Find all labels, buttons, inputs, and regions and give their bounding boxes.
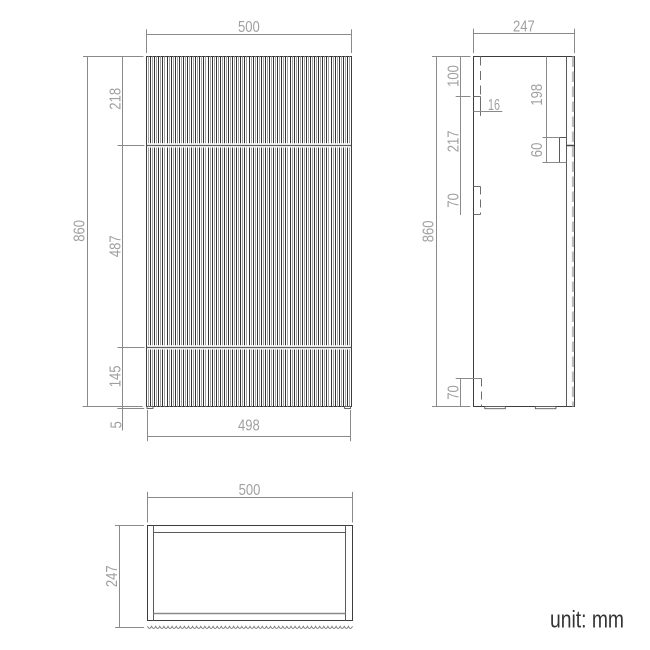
svg-text:860: 860	[421, 220, 438, 242]
svg-text:217: 217	[445, 131, 462, 153]
svg-text:500: 500	[238, 19, 260, 36]
svg-text:247: 247	[513, 19, 535, 36]
svg-text:100: 100	[445, 65, 462, 87]
svg-text:5: 5	[108, 421, 125, 429]
svg-text:70: 70	[445, 385, 462, 400]
svg-text:487: 487	[108, 235, 125, 257]
svg-text:70: 70	[445, 193, 462, 208]
svg-text:498: 498	[238, 417, 260, 434]
svg-text:16: 16	[488, 97, 500, 114]
svg-text:860: 860	[72, 220, 89, 242]
svg-text:198: 198	[529, 84, 546, 106]
svg-text:500: 500	[239, 482, 261, 499]
svg-text:145: 145	[108, 365, 125, 387]
svg-text:218: 218	[108, 88, 125, 110]
svg-text:60: 60	[529, 142, 546, 157]
svg-text:unit: mm: unit: mm	[550, 607, 624, 634]
svg-text:247: 247	[104, 565, 121, 587]
